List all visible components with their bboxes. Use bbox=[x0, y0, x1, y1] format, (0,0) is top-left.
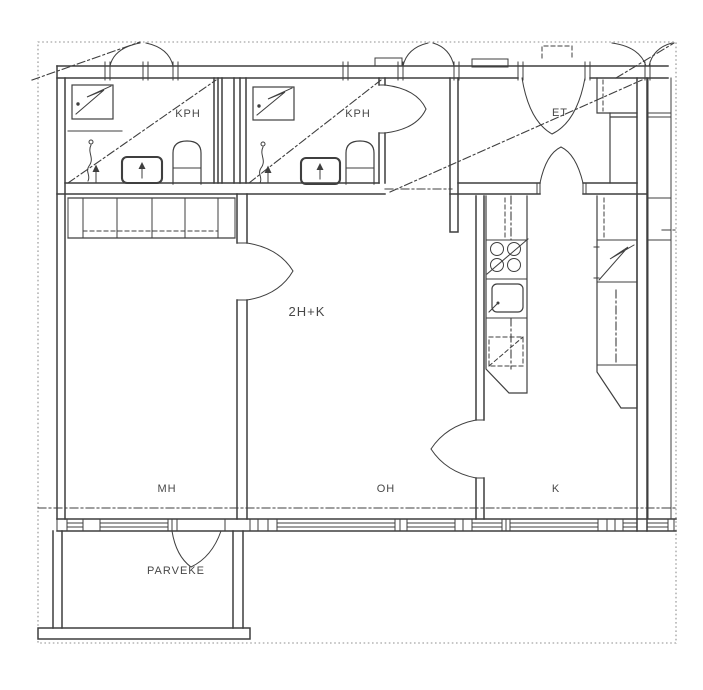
duct-shaft-walls bbox=[214, 78, 246, 183]
sink-icon bbox=[301, 158, 340, 184]
bathroom-left: KPH bbox=[57, 78, 385, 194]
door-arc-kitchen bbox=[540, 147, 583, 183]
washer-reservation-icon bbox=[72, 85, 113, 119]
closet-band bbox=[68, 198, 235, 238]
stove-icon bbox=[487, 239, 528, 274]
dashed-reservation-box bbox=[542, 46, 572, 58]
et-closet bbox=[597, 78, 637, 183]
door-jambs bbox=[379, 85, 385, 133]
shower-icon bbox=[260, 142, 272, 183]
bathroom-right-wall bbox=[379, 78, 385, 183]
door-arc-bathroom-right bbox=[385, 85, 426, 133]
door-jambs bbox=[476, 420, 484, 478]
dishwasher-reservation-icon bbox=[489, 337, 523, 366]
top-strip-neighbour-elements bbox=[32, 42, 674, 80]
hall-partition-wall bbox=[450, 78, 458, 232]
kitchen-door-jambs bbox=[537, 183, 586, 194]
toilet-icon bbox=[173, 141, 201, 184]
door-arc-oh-k bbox=[431, 420, 476, 478]
toilet-icon bbox=[346, 141, 374, 184]
balcony-slab bbox=[38, 628, 250, 639]
room-label-oh: OH bbox=[377, 483, 396, 495]
apartment-type-label: 2H+K bbox=[289, 304, 326, 319]
dashdot-diagonal-top-left bbox=[32, 42, 140, 80]
room-label-et: ET bbox=[552, 107, 568, 119]
right-party-wall bbox=[637, 78, 647, 531]
door-arc-mh-oh bbox=[247, 243, 293, 300]
left-wall bbox=[57, 66, 65, 519]
living-room: OH 2H+K bbox=[289, 304, 396, 495]
sink-icon bbox=[122, 157, 162, 183]
kitchen-counter-right bbox=[594, 196, 637, 408]
exterior-walls bbox=[57, 66, 668, 531]
bedroom: MH bbox=[68, 194, 293, 519]
corridor-door-arcs-right bbox=[612, 43, 672, 66]
entry-hall: ET bbox=[385, 78, 647, 232]
room-label-parveke: PARVEKE bbox=[147, 565, 205, 577]
floor-plan-page: KPH KPH bbox=[0, 0, 703, 690]
shower-icon bbox=[88, 140, 100, 182]
window-band bbox=[57, 519, 676, 531]
neighbour-walls bbox=[648, 78, 671, 519]
window-mullions bbox=[57, 519, 674, 531]
counter-outline bbox=[597, 196, 637, 408]
fridge-icon bbox=[594, 245, 634, 280]
room-label-kph-left: KPH bbox=[175, 108, 201, 120]
washer-reservation-icon bbox=[253, 87, 294, 120]
room-label-kph-right: KPH bbox=[345, 108, 371, 120]
door-arc-balcony bbox=[172, 531, 221, 567]
counter-divisions bbox=[597, 240, 637, 365]
room-label-mh: MH bbox=[157, 483, 176, 495]
bathroom-right: KPH bbox=[249, 78, 426, 184]
dashdot-diagonal-et bbox=[390, 80, 642, 192]
neighbour-right-fragment bbox=[648, 78, 676, 519]
neighbour-fixtures bbox=[648, 113, 671, 240]
corridor-door-arcs-middle bbox=[403, 43, 454, 66]
band-outer-lines bbox=[57, 519, 676, 531]
top-wall bbox=[57, 66, 668, 78]
door-arc-entry bbox=[522, 78, 585, 134]
floor-plan-drawing: KPH KPH bbox=[0, 0, 703, 690]
kitchen: K bbox=[431, 196, 637, 519]
washer-dot bbox=[76, 102, 79, 105]
kitchen-sink-icon bbox=[489, 284, 523, 312]
room-label-k: K bbox=[552, 483, 560, 495]
door-jambs bbox=[237, 243, 247, 300]
et-bottom-wall bbox=[450, 183, 647, 194]
washer-zigzag bbox=[257, 88, 292, 115]
kitchen-counter-left bbox=[486, 196, 528, 393]
balcony: PARVEKE bbox=[38, 531, 250, 639]
plot-border bbox=[38, 42, 676, 643]
oh-k-wall bbox=[476, 196, 484, 519]
washer-zigzag bbox=[76, 86, 111, 114]
corridor-door-arcs-left bbox=[110, 43, 173, 66]
window-glazing bbox=[67, 523, 668, 527]
washer-dot bbox=[257, 104, 260, 107]
